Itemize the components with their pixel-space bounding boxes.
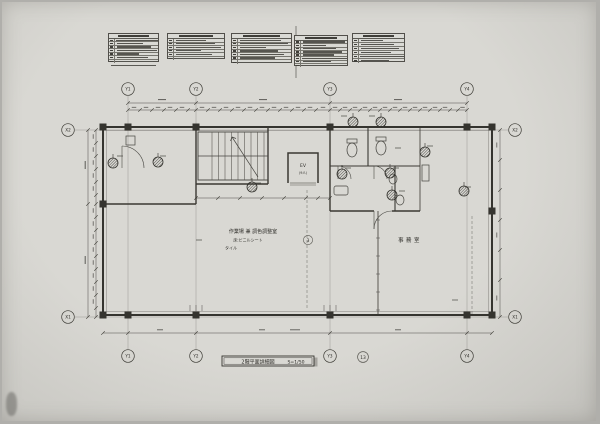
toilet-bowl-1 <box>347 143 357 157</box>
section-cut-marker <box>108 154 118 168</box>
work-room-label: 作業場 兼 調色調整室 <box>229 228 277 235</box>
elevator-label: EV <box>300 163 307 169</box>
grid-lines <box>75 96 508 349</box>
dimension-numbers <box>85 99 498 330</box>
section-cut-marker <box>459 182 469 196</box>
elevator-capacity: (9人) <box>299 170 308 175</box>
basin-2 <box>396 195 404 205</box>
pipe-space <box>126 136 135 145</box>
axis-bubble-y1-bottom: Y1 <box>122 350 135 363</box>
svg-text:Y1: Y1 <box>124 87 131 92</box>
axis-bubble-x2-right: X2 <box>509 124 522 137</box>
drawing-title: 2階平面詳細図 <box>241 358 274 365</box>
axis-bubble-y3-top: Y3 <box>324 83 337 96</box>
svg-text:X2: X2 <box>65 128 71 133</box>
axis-bubble-x2-left: X2 <box>62 124 75 137</box>
dimension-ticks <box>86 101 502 335</box>
svg-text:X1: X1 <box>512 315 518 320</box>
sink <box>334 186 348 195</box>
elevator: EV (9人) <box>288 153 318 185</box>
toilet-tank-1 <box>347 139 357 143</box>
section-cut-marker <box>348 113 358 127</box>
title-block-shadow <box>314 358 318 367</box>
sheet-number-circle: 13 <box>358 352 369 363</box>
work-room-floor-note: 床:ビニルシート <box>233 237 262 243</box>
axis-bubble-y3-bottom: Y3 <box>324 350 337 363</box>
svg-text:Y3: Y3 <box>326 87 333 92</box>
interior-walls <box>103 127 420 315</box>
section-cut-marker <box>376 113 386 127</box>
door-arc-office <box>374 211 392 229</box>
room-labels: 作業場 兼 調色調整室 床:ビニルシート タイル 事務室 <box>225 228 422 251</box>
axis-bubble-x1-left: X1 <box>62 311 75 324</box>
scanned-floor-plan-sheet: { "sheet": { "title_block": {"title": "2… <box>0 0 600 424</box>
floor-plan-drawing: EV (9人) Y1 Y2 <box>0 0 600 424</box>
detail-circle: 3 <box>303 235 312 244</box>
door-arc-left-room <box>122 146 144 168</box>
svg-text:X2: X2 <box>512 128 518 133</box>
toilet-tank-2 <box>376 137 386 141</box>
drawing-scale: S=1/50 <box>287 359 304 365</box>
duct-shaft <box>422 165 429 181</box>
svg-text:Y1: Y1 <box>124 354 131 359</box>
svg-text:X1: X1 <box>65 315 71 320</box>
svg-text:Y3: Y3 <box>326 354 333 359</box>
toilet-bowl-2 <box>376 141 386 155</box>
stair <box>198 132 268 180</box>
title-block: 2階平面詳細図 S=1/50 <box>222 356 318 367</box>
svg-text:Y4: Y4 <box>463 354 470 359</box>
axis-bubble-y2-bottom: Y2 <box>190 350 203 363</box>
office-label: 事務室 <box>398 236 422 244</box>
svg-text:13: 13 <box>360 355 366 361</box>
section-cut-marker <box>337 165 347 179</box>
dimension-lines <box>88 103 500 333</box>
axis-bubble-x1-right: X1 <box>509 311 522 324</box>
svg-text:Y2: Y2 <box>192 87 199 92</box>
svg-text:Y4: Y4 <box>463 87 470 92</box>
section-cut-marker <box>153 153 163 167</box>
stair-direction-arrow <box>232 137 258 177</box>
section-cut-marker <box>420 143 430 157</box>
axis-bubble-y4-bottom: Y4 <box>461 350 474 363</box>
svg-text:3: 3 <box>307 238 310 244</box>
axis-bubble-y1-top: Y1 <box>122 83 135 96</box>
work-room-floor-note2: タイル <box>225 245 237 251</box>
axis-bubble-y2-top: Y2 <box>190 83 203 96</box>
svg-text:Y2: Y2 <box>192 354 199 359</box>
axis-bubble-y4-top: Y4 <box>461 83 474 96</box>
partition-ticks <box>190 220 380 311</box>
